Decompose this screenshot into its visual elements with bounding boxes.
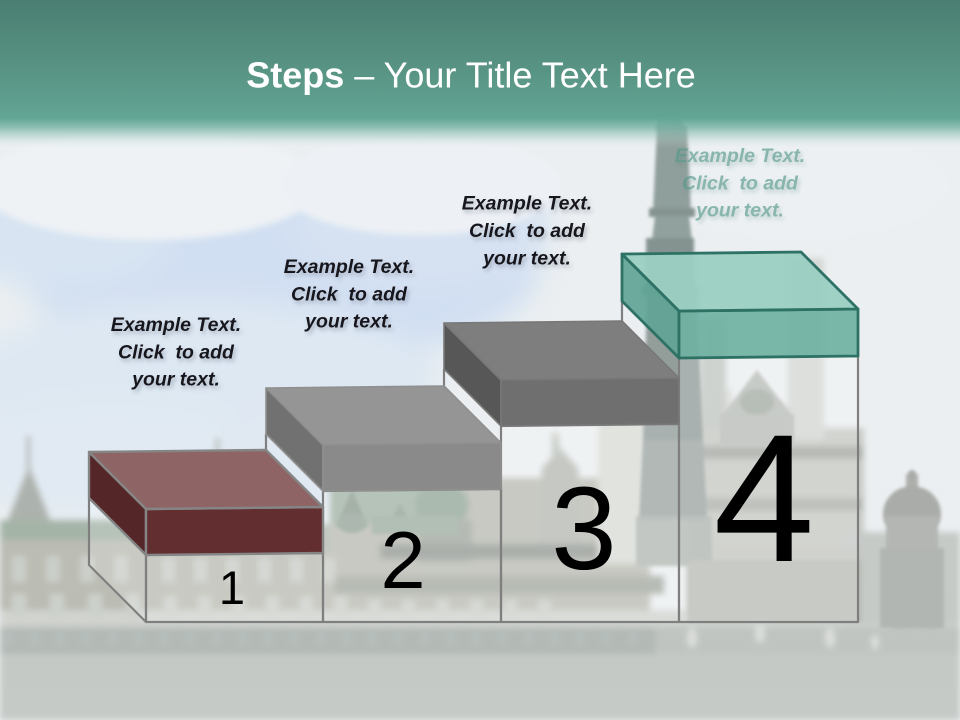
svg-text:Click to add: Click to add xyxy=(291,283,408,305)
svg-text:Steps – Your Title Text Here: Steps – Your Title Text Here xyxy=(246,55,696,96)
svg-text:2: 2 xyxy=(380,516,425,606)
svg-text:Example Text.: Example Text. xyxy=(111,314,241,336)
svg-text:4: 4 xyxy=(713,396,814,600)
svg-text:your text.: your text. xyxy=(304,311,393,333)
svg-text:Click to add: Click to add xyxy=(118,341,235,363)
svg-text:Example Text.: Example Text. xyxy=(462,193,592,215)
svg-text:Example Text.: Example Text. xyxy=(675,145,805,167)
svg-text:Click to add: Click to add xyxy=(469,220,586,242)
svg-text:3: 3 xyxy=(551,463,617,595)
svg-text:your text.: your text. xyxy=(131,369,220,391)
svg-text:your text.: your text. xyxy=(695,200,784,222)
svg-text:Click to add: Click to add xyxy=(682,172,799,194)
svg-text:your text.: your text. xyxy=(482,247,571,269)
svg-text:1: 1 xyxy=(219,561,245,614)
svg-text:Example Text.: Example Text. xyxy=(284,256,414,278)
